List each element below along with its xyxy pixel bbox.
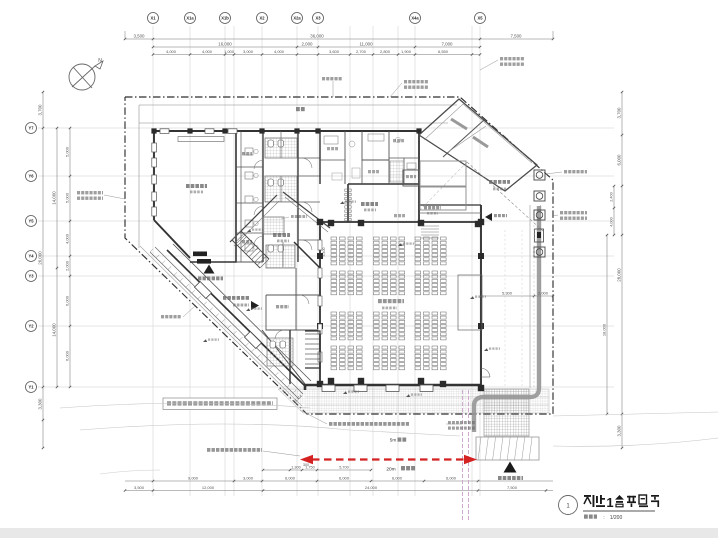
svg-text:1/200: 1/200 (610, 515, 623, 521)
svg-text:5m: 5m (390, 438, 397, 443)
svg-text:7,500: 7,500 (507, 485, 518, 490)
svg-text:X3: X3 (315, 16, 321, 21)
svg-text:Y5: Y5 (28, 219, 34, 224)
svg-text:X1b: X1b (221, 16, 229, 21)
svg-text:4,000: 4,000 (274, 49, 285, 54)
svg-text:14,000: 14,000 (52, 191, 57, 205)
svg-text:1,900: 1,900 (401, 49, 412, 54)
svg-text:2,400: 2,400 (610, 192, 614, 202)
svg-text:1,000: 1,000 (224, 49, 235, 54)
svg-text:3,500: 3,500 (134, 485, 145, 490)
svg-text:5,300: 5,300 (502, 291, 513, 296)
svg-text:4,000: 4,000 (202, 49, 213, 54)
svg-text:5,000: 5,000 (65, 192, 70, 203)
svg-text:N: N (98, 58, 102, 64)
svg-text:X2: X2 (259, 16, 265, 21)
svg-text:2,000: 2,000 (538, 291, 549, 296)
svg-text:26,000: 26,000 (38, 251, 43, 265)
svg-text:4,000: 4,000 (65, 233, 70, 244)
svg-text:7,500: 7,500 (511, 34, 523, 39)
svg-text:1: 1 (606, 495, 613, 510)
svg-text::: : (603, 515, 604, 521)
svg-text:X5: X5 (477, 16, 483, 21)
svg-text:20m: 20m (386, 467, 395, 473)
svg-text:4,000: 4,000 (610, 217, 614, 227)
svg-text:300: 300 (303, 463, 309, 467)
svg-text:36,000: 36,000 (310, 34, 324, 39)
svg-text:Y4: Y4 (28, 254, 34, 259)
svg-text:3,500: 3,500 (134, 34, 146, 39)
svg-text:12,000: 12,000 (202, 485, 215, 490)
svg-text:11,000: 11,000 (359, 42, 373, 47)
svg-text:3,700: 3,700 (38, 104, 43, 116)
svg-text:Y2: Y2 (28, 324, 34, 329)
svg-text:X4a: X4a (411, 16, 419, 21)
svg-text:4,000: 4,000 (166, 49, 177, 54)
svg-text:3,000: 3,000 (243, 476, 254, 481)
svg-text:X1a: X1a (186, 16, 194, 21)
svg-text:6,000: 6,000 (65, 295, 70, 306)
svg-text:3,000: 3,000 (243, 49, 254, 54)
svg-text:24,000: 24,000 (365, 485, 378, 490)
svg-text:18,000: 18,000 (602, 323, 607, 336)
svg-text:1,300: 1,300 (291, 466, 301, 470)
svg-text:6,000: 6,000 (339, 476, 350, 481)
svg-text:5,400: 5,400 (322, 248, 326, 257)
svg-text:6,000: 6,000 (446, 476, 457, 481)
svg-text:28,000: 28,000 (617, 268, 622, 282)
svg-text:2,000: 2,000 (65, 260, 70, 271)
svg-text:16,000: 16,000 (218, 42, 232, 47)
svg-text:3,600: 3,600 (329, 49, 340, 54)
svg-text:2,000: 2,000 (302, 42, 314, 47)
svg-text:Y1: Y1 (28, 385, 34, 390)
svg-text:5,700: 5,700 (339, 466, 349, 470)
svg-text:Y7: Y7 (28, 126, 34, 131)
svg-text:3,300: 3,300 (38, 398, 43, 410)
svg-text:5,000: 5,000 (65, 146, 70, 157)
svg-text:Y3: Y3 (28, 274, 34, 279)
svg-text:2,700: 2,700 (356, 49, 367, 54)
svg-text:9,000: 9,000 (188, 476, 199, 481)
svg-text:7,000: 7,000 (442, 42, 454, 47)
svg-text:6,550: 6,550 (438, 49, 449, 54)
svg-text:3,300: 3,300 (617, 425, 622, 437)
svg-text:X1: X1 (150, 16, 156, 21)
svg-text:6,000: 6,000 (617, 154, 622, 166)
svg-text:6,000: 6,000 (285, 476, 296, 481)
svg-text:14,000: 14,000 (52, 323, 57, 337)
svg-text:Y6: Y6 (28, 174, 34, 179)
svg-text:X2a: X2a (293, 16, 301, 21)
svg-text:6,000: 6,000 (392, 476, 403, 481)
svg-text:3,700: 3,700 (617, 107, 622, 119)
svg-text:2,800: 2,800 (380, 49, 391, 54)
svg-text:6,000: 6,000 (65, 350, 70, 361)
